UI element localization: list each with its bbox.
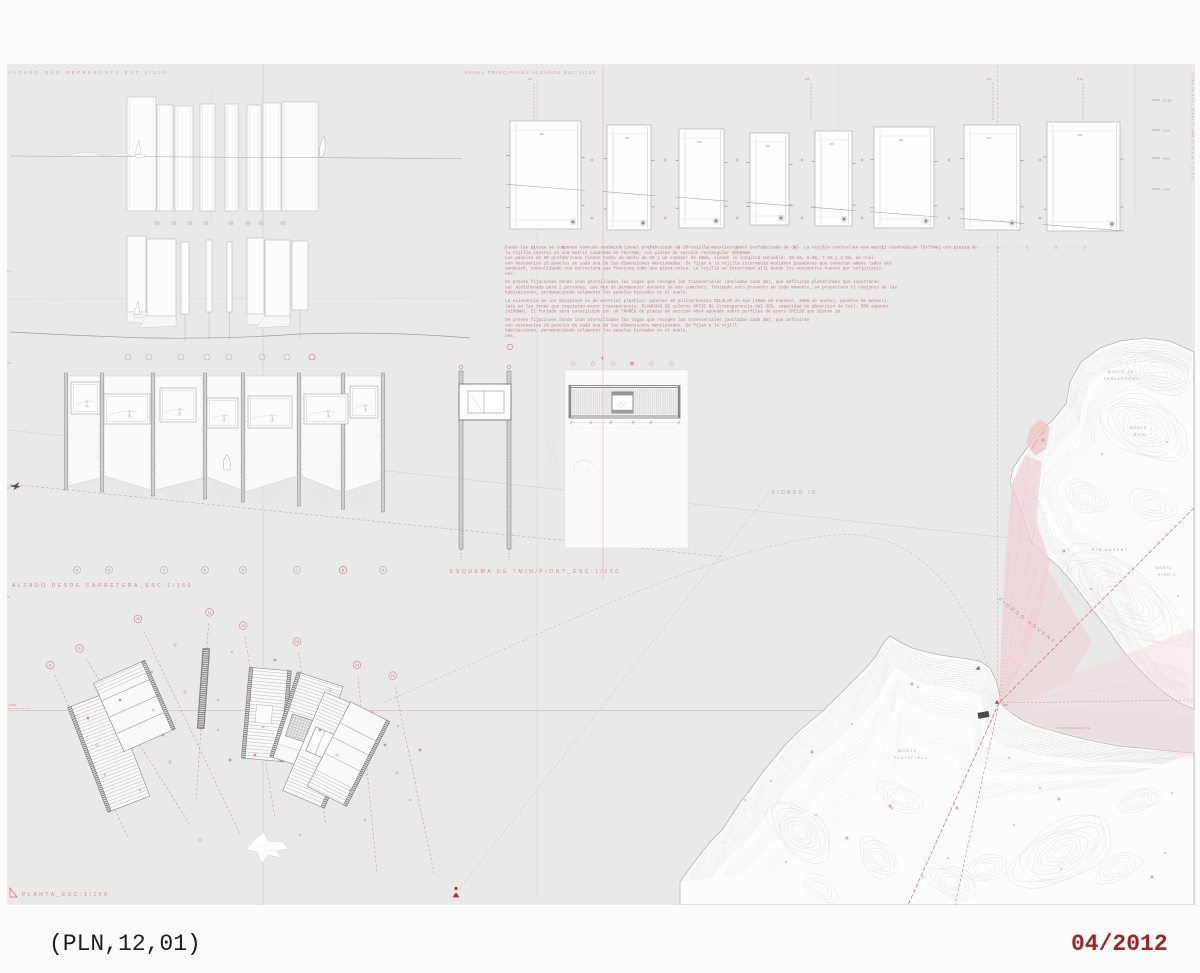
svg-text:-01-: -01- [539, 132, 544, 136]
svg-text:G: G [107, 568, 110, 573]
svg-text:11: 11 [208, 611, 212, 615]
svg-text:-07-: -07- [987, 136, 992, 140]
svg-text:lato en las zonas que requiera: lato en las zonas que requieran mayor tr… [505, 304, 890, 309]
svg-text:(PLN,12,01): (PLN,12,01) [49, 931, 201, 957]
svg-text:MONTE: MONTE [1156, 566, 1173, 570]
svg-text:+9.50: +9.50 [1162, 129, 1170, 133]
svg-text:FIORDO IS: FIORDO IS [772, 490, 817, 496]
svg-text:15: 15 [391, 674, 395, 678]
svg-text:ALZADO QUE REPRESENTA EST:1/10: ALZADO QUE REPRESENTA EST:1/100 [8, 70, 168, 75]
svg-text:-08-: -08- [1077, 133, 1082, 137]
svg-text:nes.: nes. [505, 334, 515, 339]
svg-text:COTAS DE NIVEL SOBRE EL MAR 12: COTAS DE NIVEL SOBRE EL MAR 12.50 9.80 7… [1191, 72, 1195, 181]
svg-text:10: 10 [136, 617, 140, 621]
svg-text:nes.: nes. [505, 272, 515, 277]
svg-text:Se preven fijaciones donde ira: Se preven fijaciones donde iran atornill… [505, 280, 879, 285]
svg-text:13: 13 [295, 640, 299, 644]
svg-text:+0.00: +0.00 [8, 703, 16, 707]
svg-text:son necesarios 16 paneles de c: son necesarios 16 paneles de cada una de… [505, 261, 892, 266]
svg-text:H: H [76, 568, 79, 573]
svg-text:ESQUEMA DE 7MIN/PIONT_ESC:1/15: ESQUEMA DE 7MIN/PIONT_ESC:1/150 [450, 569, 621, 575]
svg-text:La existencia de los minipisos: La existencia de los minipisos es de mat… [505, 299, 889, 304]
svg-text:TRANSPARENTE: TRANSPARENTE [1056, 726, 1090, 730]
svg-text:A: A [382, 568, 385, 573]
svg-text:BNIS: BNIS [1134, 433, 1146, 437]
svg-text:ser acolchonado para 2 persona: ser acolchonado para 2 personas, que han… [505, 285, 897, 290]
svg-text:-02-: -02- [624, 136, 629, 140]
svg-text:D: D [242, 568, 245, 573]
svg-text:Se preven fijaciones donde ira: Se preven fijaciones donde iran atornill… [505, 318, 810, 323]
svg-text:04/2012: 04/2012 [1071, 931, 1168, 957]
svg-text:P.5: P.5 [528, 77, 532, 81]
svg-text:habitaciones, permaneciendo so: habitaciones, permaneciendo solamente lo… [505, 291, 688, 296]
svg-text:la rejilla central es una matr: la rejilla central es una matriz cuadrad… [505, 251, 753, 256]
svg-text:9: 9 [79, 647, 81, 651]
svg-text:MONTE: MONTE [898, 749, 917, 753]
svg-text:-05-: -05- [829, 142, 834, 146]
svg-text:(x100mm). El forjado sera cons: (x100mm). El forjado sera constituido po… [505, 310, 843, 315]
svg-text:-04-: -04- [765, 144, 770, 148]
svg-text:14: 14 [355, 663, 359, 667]
svg-text:461: 461 [1003, 703, 1008, 707]
svg-text:E: E [204, 568, 207, 573]
svg-text:+12.50: +12.50 [1162, 99, 1172, 103]
svg-text:MONTE: MONTE [1130, 426, 1148, 430]
svg-text:12: 12 [241, 624, 245, 628]
svg-text:son necesarios 16 paneles de c: son necesarios 16 paneles de cada una de… [505, 323, 737, 328]
svg-text:PLANTA_ESC:1/150: PLANTA_ESC:1/150 [22, 892, 110, 898]
svg-text:P.10: P.10 [1077, 77, 1083, 81]
svg-text:Todas las piezas se componen c: Todas las piezas se componen como un san… [505, 246, 977, 251]
svg-text:PLATAFJELL: PLATAFJELL [894, 756, 928, 760]
svg-text:RIO ADVENT: RIO ADVENT [1092, 548, 1129, 552]
svg-text:HIORTO: HIORTO [1158, 573, 1176, 577]
svg-text:8: 8 [49, 664, 51, 668]
svg-text:MONTE DE: MONTE DE [1108, 370, 1134, 374]
svg-text:-03-: -03- [697, 140, 702, 144]
svg-text:C: C [296, 568, 299, 573]
svg-text:sandwich, consolidando una est: sandwich, consolidando una estructura qu… [505, 267, 884, 272]
svg-text:+6.50: +6.50 [1162, 157, 1170, 161]
svg-text:B: B [342, 568, 345, 573]
svg-text:P.9: P.9 [987, 77, 991, 81]
svg-text:habitaciones, permaneciendo so: habitaciones, permaneciendo solamente lo… [505, 329, 688, 334]
svg-text:ALZADO DESDE CARRETERA_ESC:1/1: ALZADO DESDE CARRETERA_ESC:1/150 [12, 583, 193, 589]
svg-text:Los paneles de GR prefabricado: Los paneles de GR prefabricado tienen to… [505, 256, 876, 261]
svg-text:PANEL PRINCIPALES ALZADOS ESC:: PANEL PRINCIPALES ALZADOS ESC:1/100 [465, 70, 596, 75]
svg-text:-06-: -06- [898, 138, 903, 142]
svg-text:+3.50: +3.50 [1162, 188, 1170, 192]
svg-text:P.8: P.8 [805, 77, 809, 81]
svg-text:FORKASTNINC: FORKASTNINC [1104, 377, 1140, 381]
